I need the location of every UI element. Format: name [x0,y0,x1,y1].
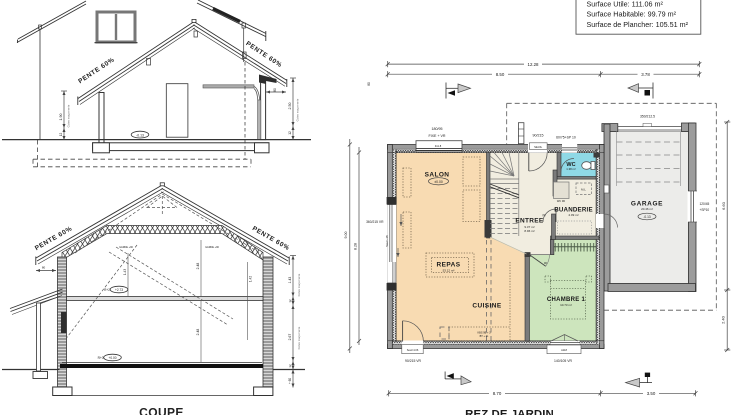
svg-text:GARDE +90: GARDE +90 [119,246,133,249]
svg-text:Cotes maçonnerie: Cotes maçonnerie [296,98,300,121]
svg-text:1.90: 1.90 [59,114,63,121]
svg-text:2.40: 2.40 [721,315,726,324]
svg-text:SEUIL: SEUIL [534,145,543,149]
svg-text:350/212.5: 350/212.5 [640,115,655,119]
svg-text:3.78: 3.78 [641,72,650,77]
svg-text:COUPE: COUPE [139,406,184,415]
svg-text:+ 60: + 60 [288,378,292,385]
svg-text:Cotes maçonnerie: Cotes maçonnerie [67,104,71,127]
svg-text:ENTREE: ENTREE [515,218,544,225]
svg-text:60/75+SP 10: 60/75+SP 10 [556,135,576,139]
svg-text:3.50: 3.50 [647,391,656,396]
svg-text:+0.00: +0.00 [108,356,116,360]
svg-text:Surface de Plancher: 105.51 m²: Surface de Plancher: 105.51 m² [587,20,689,29]
svg-text:1.43: 1.43 [288,277,292,284]
svg-text:Cotes maçonnerie: Cotes maçonnerie [297,326,301,349]
svg-text:1.42: 1.42 [249,276,253,282]
svg-text:80: 80 [42,266,46,270]
svg-text:FIXE + VR: FIXE + VR [428,134,445,138]
svg-text:12: 12 [288,131,292,135]
svg-text:8.70: 8.70 [493,391,502,396]
svg-text:PENTE 60%: PENTE 60% [244,40,283,69]
svg-text:20.46 m²: 20.46 m² [641,207,653,211]
svg-text:-0.13: -0.13 [136,133,144,137]
svg-text:12: 12 [288,299,292,303]
svg-text:BT + 4L: BT + 4L [480,335,489,338]
svg-text:4.09 m²: 4.09 m² [568,213,578,217]
svg-text:90/215 VR: 90/215 VR [405,359,422,363]
svg-text:R+2: R+2 [104,288,110,292]
svg-text:180/95: 180/95 [432,127,443,131]
svg-text:GARDE +90: GARDE +90 [205,246,219,249]
svg-text:12: 12 [288,364,292,368]
svg-text:90/215: 90/215 [533,134,544,138]
svg-text:2.48: 2.48 [196,329,200,336]
svg-text:-0.13: -0.13 [643,215,650,219]
svg-text:2.50: 2.50 [288,103,292,110]
svg-text:12: 12 [59,133,63,137]
svg-text:8.50: 8.50 [496,72,505,77]
svg-text:120/45: 120/45 [700,202,710,206]
svg-text:+2.73: +2.73 [115,288,123,292]
svg-text:±0.00: ±0.00 [434,180,443,184]
svg-text:Surface Utile: 111.06 m²: Surface Utile: 111.06 m² [587,0,664,8]
svg-text:53.12 m²: 53.12 m² [443,269,455,273]
svg-text:+SP10: +SP10 [700,208,710,212]
svg-text:8.96 m²: 8.96 m² [524,229,534,233]
svg-text:140/105 VR: 140/105 VR [554,359,572,363]
svg-text:REPAS: REPAS [437,262,461,269]
svg-text:6.60: 6.60 [721,201,726,210]
svg-text:A118: A118 [561,348,567,352]
svg-text:R+0: R+0 [98,356,104,360]
svg-text:80: 80 [273,88,277,92]
svg-text:(6): (6) [542,213,545,217]
svg-text:1.43: 1.43 [123,269,127,275]
svg-text:80: 80 [367,82,371,86]
svg-text:Seuil 4.06: Seuil 4.06 [407,348,419,352]
svg-text:M.L: M.L [581,188,586,192]
svg-text:WC 3D: WC 3D [557,199,565,203]
svg-text:Cotes maçonnerie: Cotes maçonnerie [297,273,301,296]
svg-text:2.67: 2.67 [288,334,292,341]
svg-text:1.38 m²: 1.38 m² [566,167,576,171]
svg-text:10.73 m²: 10.73 m² [560,303,572,307]
svg-text:CUISINE: CUISINE [472,303,501,310]
svg-text:411.8: 411.8 [435,144,442,148]
svg-text:8.28: 8.28 [354,243,358,250]
svg-text:12.28: 12.28 [528,62,540,67]
svg-text:Surface Habitable: 99.79 m²: Surface Habitable: 99.79 m² [587,10,677,19]
svg-text:Seuil +05: Seuil +05 [385,235,389,247]
svg-text:2.48: 2.48 [196,263,200,270]
svg-text:360/215 VR: 360/215 VR [366,220,384,224]
svg-text:9.00: 9.00 [344,232,348,239]
svg-text:REZ DE JARDIN: REZ DE JARDIN [465,408,554,415]
